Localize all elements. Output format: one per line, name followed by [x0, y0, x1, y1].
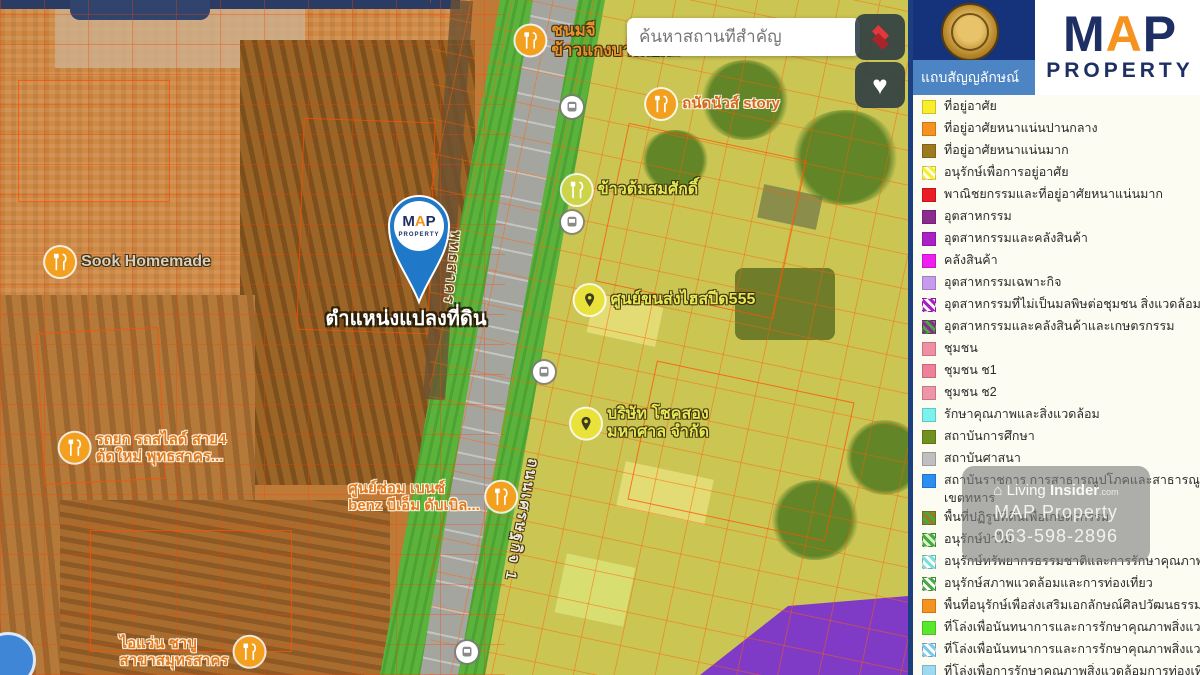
house-icon: ⌂ [993, 482, 1002, 499]
legend-item: ที่โล่งเพื่อนันทนาการและการรักษาคุณภาพสิ… [922, 640, 1200, 662]
legend-swatch [922, 555, 936, 569]
legend-item: ที่โล่งเพื่อการรักษาคุณภาพสิ่งแวดล้อมการ… [922, 662, 1200, 675]
legend-swatch [922, 452, 936, 466]
parcel-outline [90, 530, 292, 652]
place-pin-icon[interactable] [571, 409, 601, 439]
watermark-company: MAP Property [994, 502, 1118, 523]
legend-label: ที่อยู่อาศัย [944, 98, 997, 116]
map-poi[interactable]: Sook Homemade [45, 247, 211, 277]
poi-label: ศูนย์ขนส่งไฮสปีด555 [611, 291, 756, 309]
poi-label: รถยก รถสไลด์ สาย4ตัดใหม่ พุทธสาคร... [96, 431, 227, 466]
map-poi[interactable]: ศูนย์ซ่อม เบนซ์benz บีเอ็ม ดับเบิล... [348, 480, 516, 515]
legend-label: รักษาคุณภาพและสิ่งแวดล้อม [944, 406, 1100, 424]
map-poi[interactable]: บริษัท โชคสองมหาศาล จำกัด [571, 406, 709, 443]
legend-item: ที่อยู่อาศัยหนาแน่นปานกลาง [922, 119, 1200, 141]
map-poi[interactable]: ข้าวต้มสมศักดิ์ [562, 175, 698, 205]
map-poi[interactable] [533, 361, 561, 383]
legend-swatch [922, 144, 936, 158]
legend-label: ที่โล่งเพื่อการรักษาคุณภาพสิ่งแวดล้อมการ… [944, 663, 1200, 675]
legend-swatch [922, 599, 936, 613]
restaurant-icon[interactable] [562, 175, 592, 205]
legend-swatch [922, 665, 936, 675]
svg-text:PROPERTY: PROPERTY [398, 232, 439, 238]
legend-swatch [922, 364, 936, 378]
restaurant-icon[interactable] [515, 25, 545, 55]
legend-list: ที่อยู่อาศัย ที่อยู่อาศัยหนาแน่นปานกลาง … [913, 95, 1200, 675]
restaurant-icon[interactable] [60, 433, 90, 463]
legend-swatch [922, 643, 936, 657]
place-pin-icon[interactable] [575, 285, 605, 315]
legend-item: พื้นที่อนุรักษ์เพื่อส่งเสริมเอกลักษณ์ศิล… [922, 596, 1200, 618]
legend-item: อนุรักษ์สภาพแวดล้อมและการท่องเที่ยว [922, 574, 1200, 596]
legend-label: อุตสาหกรรมและคลังสินค้า [944, 230, 1088, 248]
legend-swatch [922, 232, 936, 246]
restaurant-icon[interactable] [45, 247, 75, 277]
legend-swatch [922, 474, 936, 488]
legend-swatch [922, 511, 936, 525]
legend-swatch [922, 122, 936, 136]
legend-label: อนุรักษ์สภาพแวดล้อมและการท่องเที่ยว [944, 575, 1153, 593]
legend-label: อนุรักษ์เพื่อการอยู่อาศัย [944, 164, 1069, 182]
map-poi[interactable]: ไอแว่น ชาบูสาขาสมุทรสาคร [120, 635, 265, 670]
restaurant-icon[interactable] [486, 482, 516, 512]
legend-swatch [922, 386, 936, 400]
legend-label: อุตสาหกรรมและคลังสินค้าและเกษตรกรรม [944, 318, 1174, 336]
layers-button[interactable] [855, 14, 905, 60]
watermark: ⌂ Living Insider.com MAP Property 063-59… [962, 466, 1150, 562]
legend-label: ชุมชน [944, 340, 978, 358]
poi-label: Sook Homemade [81, 253, 211, 271]
legend-item: ที่อยู่อาศัยหนาแน่นมาก [922, 141, 1200, 163]
poi-label: ศูนย์ซ่อม เบนซ์benz บีเอ็ม ดับเบิล... [348, 480, 480, 515]
poi-label: ถนัดนัวส์ story [682, 95, 780, 112]
legend-label: ที่อยู่อาศัยหนาแน่นมาก [944, 142, 1069, 160]
map-poi[interactable]: ถนัดนัวส์ story [646, 89, 780, 119]
legend-swatch [922, 100, 936, 114]
map-poi[interactable] [561, 211, 589, 233]
legend-item: พาณิชยกรรมและที่อยู่อาศัยหนาแน่นมาก [922, 185, 1200, 207]
map-property-app: พุทธสาคร ถนนเศรษฐกิจ 1 ชนมจีข้าวแกงบางกอ… [0, 0, 1200, 675]
map-property-logo: MAP PROPERTY [1035, 0, 1200, 95]
legend-item: ชุมชน [922, 339, 1200, 361]
legend-panel: แถบสัญญลักษณ์ MAP PROPERTY ที่อยู่อาศัย … [908, 0, 1200, 675]
legend-swatch [922, 166, 936, 180]
legend-label: อุตสาหกรรมที่ไม่เป็นมลพิษต่อชุมชน สิ่งแว… [944, 296, 1200, 314]
legend-swatch [922, 533, 936, 547]
favorite-button[interactable]: ♥ [855, 62, 905, 108]
pin-caption: ตำแหน่งแปลงที่ดิน [325, 302, 486, 334]
transit-stop-icon[interactable] [456, 641, 478, 663]
legend-swatch [922, 210, 936, 224]
legend-item: อุตสาหกรรมเฉพาะกิจ [922, 273, 1200, 295]
watermark-brand: ⌂ Living Insider.com [993, 482, 1118, 499]
legend-item: อุตสาหกรรม [922, 207, 1200, 229]
transit-stop-icon[interactable] [561, 211, 583, 233]
map-poi[interactable]: รถยก รถสไลด์ สาย4ตัดใหม่ พุทธสาคร... [60, 431, 227, 466]
map-canvas[interactable]: พุทธสาคร ถนนเศรษฐกิจ 1 ชนมจีข้าวแกงบางกอ… [0, 0, 908, 675]
legend-item: อนุรักษ์เพื่อการอยู่อาศัย [922, 163, 1200, 185]
legend-item: ที่โล่งเพื่อนันทนาการและการรักษาคุณภาพสิ… [922, 618, 1200, 640]
property-location-pin[interactable]: MAP PROPERTY [384, 190, 454, 305]
legend-item: ชุมชน ช2 [922, 383, 1200, 405]
legend-swatch [922, 408, 936, 422]
legend-label: พาณิชยกรรมและที่อยู่อาศัยหนาแน่นมาก [944, 186, 1163, 204]
map-poi[interactable] [456, 641, 484, 663]
heart-icon: ♥ [872, 70, 887, 101]
legend-label: คลังสินค้า [944, 252, 998, 270]
transit-stop-icon[interactable] [561, 96, 583, 118]
restaurant-icon[interactable] [646, 89, 676, 119]
search-bar[interactable] [627, 18, 860, 56]
map-poi[interactable] [561, 96, 589, 118]
legend-title: แถบสัญญลักษณ์ [913, 60, 1051, 95]
parcel-outline [18, 80, 170, 202]
legend-label: สถาบันการศึกษา [944, 428, 1035, 446]
legend-label: ที่โล่งเพื่อนันทนาการและการรักษาคุณภาพสิ… [944, 619, 1200, 637]
legend-swatch [922, 621, 936, 635]
poi-label: บริษัท โชคสองมหาศาล จำกัด [607, 406, 709, 443]
legend-swatch [922, 342, 936, 356]
legend-label: อุตสาหกรรมเฉพาะกิจ [944, 274, 1061, 292]
logo-subtitle: PROPERTY [1046, 59, 1194, 83]
search-input[interactable] [627, 27, 860, 47]
poi-label: ข้าวต้มสมศักดิ์ [598, 181, 698, 199]
legend-item: คลังสินค้า [922, 251, 1200, 273]
legend-label: ชุมชน ช1 [944, 362, 997, 380]
panel-header: แถบสัญญลักษณ์ MAP PROPERTY [913, 0, 1200, 95]
legend-swatch [922, 577, 936, 591]
legend-label: ที่โล่งเพื่อนันทนาการและการรักษาคุณภาพสิ… [944, 641, 1200, 659]
transit-stop-icon[interactable] [533, 361, 555, 383]
restaurant-icon[interactable] [234, 637, 264, 667]
legend-item: อุตสาหกรรมและคลังสินค้า [922, 229, 1200, 251]
map-poi[interactable]: ศูนย์ขนส่งไฮสปีด555 [575, 285, 756, 315]
legend-label: ชุมชน ช2 [944, 384, 997, 402]
government-seal-icon [941, 3, 999, 61]
legend-label: ที่อยู่อาศัยหนาแน่นปานกลาง [944, 120, 1098, 138]
legend-item: อุตสาหกรรมและคลังสินค้าและเกษตรกรรม [922, 317, 1200, 339]
logo-word: MAP [1063, 12, 1177, 57]
legend-item: ชุมชน ช1 [922, 361, 1200, 383]
legend-swatch [922, 188, 936, 202]
legend-swatch [922, 298, 936, 312]
legend-swatch [922, 320, 936, 334]
legend-label: อุตสาหกรรม [944, 208, 1012, 226]
legend-item: ที่อยู่อาศัย [922, 97, 1200, 119]
legend-item: รักษาคุณภาพและสิ่งแวดล้อม [922, 405, 1200, 427]
legend-label: สถาบันศาสนา [944, 450, 1021, 468]
legend-item: อุตสาหกรรมที่ไม่เป็นมลพิษต่อชุมชน สิ่งแว… [922, 295, 1200, 317]
poi-label: ไอแว่น ชาบูสาขาสมุทรสาคร [120, 635, 229, 670]
legend-swatch [922, 254, 936, 268]
watermark-phone: 063-598-2896 [994, 526, 1118, 547]
svg-text:MAP: MAP [402, 213, 435, 230]
seal-background [913, 0, 1035, 60]
legend-swatch [922, 430, 936, 444]
legend-swatch [922, 276, 936, 290]
legend-label: พื้นที่อนุรักษ์เพื่อส่งเสริมเอกลักษณ์ศิล… [944, 597, 1200, 615]
legend-item: สถาบันการศึกษา [922, 427, 1200, 449]
